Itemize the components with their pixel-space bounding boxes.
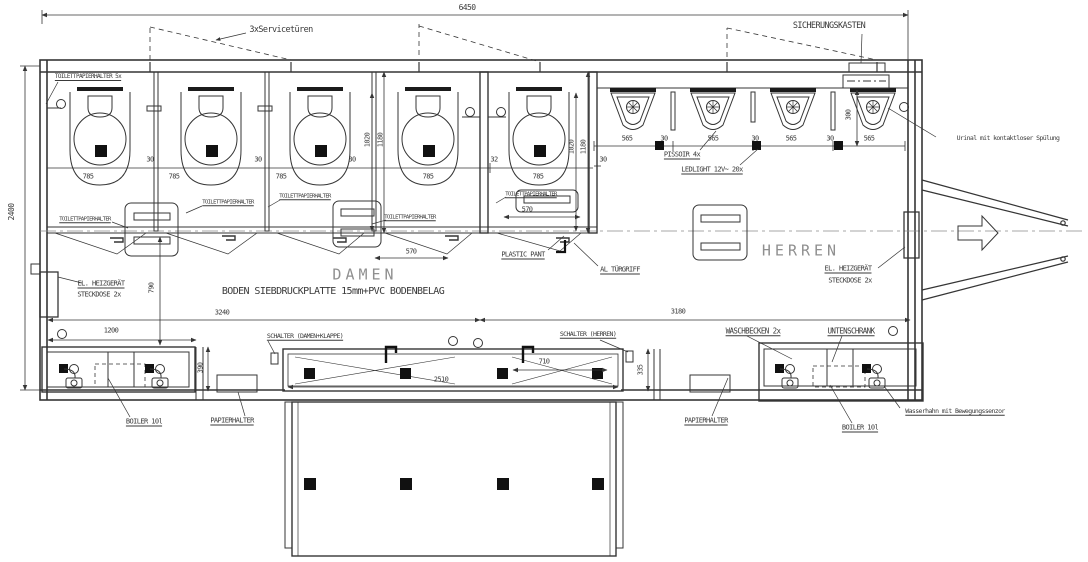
service-door-swings xyxy=(150,24,877,62)
entry-step xyxy=(271,337,633,392)
faucet-left-1 xyxy=(59,364,82,388)
toilets xyxy=(47,87,569,185)
drawbar xyxy=(922,180,1068,300)
direction-arrow xyxy=(958,216,998,250)
toilet-symbol-2 xyxy=(181,87,241,185)
faucet-left-2 xyxy=(145,364,168,388)
heater-left xyxy=(40,272,58,317)
toilet-symbol-1 xyxy=(70,87,130,185)
switch-herren-symbol xyxy=(626,351,633,362)
urinal-symbol-3 xyxy=(770,88,816,130)
faucet-right-1 xyxy=(775,364,798,388)
folding-platform xyxy=(285,402,623,556)
paper-dispensers xyxy=(125,190,747,260)
fusebox-symbol xyxy=(843,63,889,88)
urinals xyxy=(610,88,909,130)
toilet-symbol-5 xyxy=(509,87,569,185)
urinal-symbol-2 xyxy=(690,88,736,130)
switch-damen-symbol xyxy=(271,353,278,364)
faucet-right-2 xyxy=(862,364,885,388)
floor-drain xyxy=(693,205,747,260)
floor-plan-drawing xyxy=(0,0,1088,562)
urinal-symbol-1 xyxy=(610,88,656,130)
toilet-symbol-4 xyxy=(398,87,458,185)
heater-right xyxy=(904,212,919,258)
floor-plan-sheet: 645024003xServicetürenSICHERUNGSKASTENTO… xyxy=(0,0,1088,562)
toilet-symbol-3 xyxy=(290,87,350,185)
